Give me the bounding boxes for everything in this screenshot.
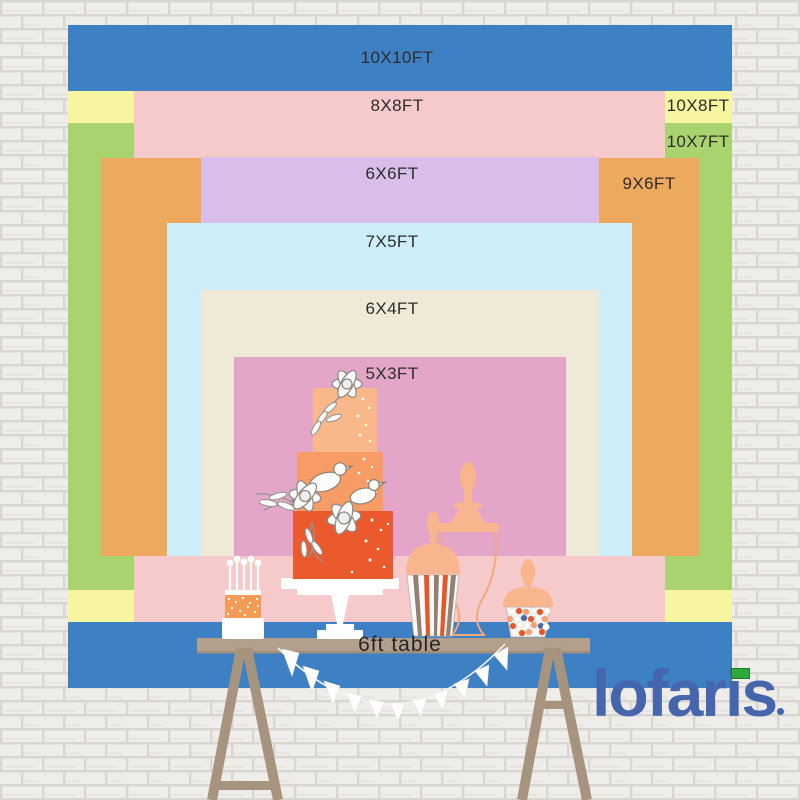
cake-stand xyxy=(281,578,399,639)
candle-cake-illustration xyxy=(222,556,264,639)
table-trestle-left xyxy=(212,648,278,800)
lofaris-logo-green-chip-icon xyxy=(731,668,750,679)
candy-jar-illustration xyxy=(503,559,553,637)
lofaris-logo-registered-dot-icon xyxy=(777,708,784,715)
lofaris-logo: lofaris xyxy=(592,660,776,726)
table-size-label: 6ft table xyxy=(358,633,442,657)
backdrop-size-chart: 10X10FT10X8FT10X7FT8X8FT9X6FT6X6FT7X5FT6… xyxy=(0,0,800,800)
table-trestle-right xyxy=(522,648,587,800)
